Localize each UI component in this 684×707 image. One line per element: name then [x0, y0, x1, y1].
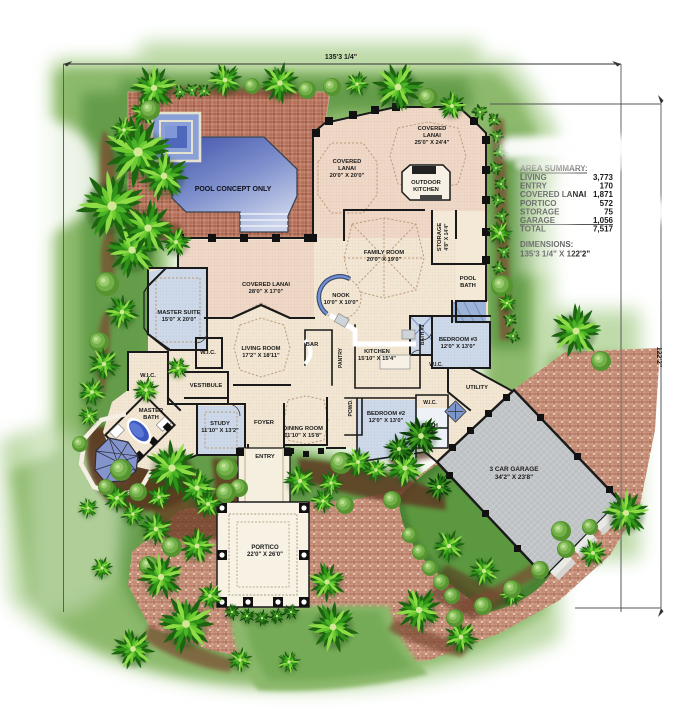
svg-text:BATH: BATH [460, 283, 476, 289]
svg-text:POOL: POOL [460, 276, 477, 282]
svg-text:PORTICO: PORTICO [251, 545, 279, 551]
svg-text:17'2" X 18'11": 17'2" X 18'11" [242, 353, 280, 359]
svg-text:11'10" X 15'8": 11'10" X 15'8" [284, 433, 322, 439]
svg-text:VESTIBULE: VESTIBULE [190, 383, 223, 389]
svg-text:W.I.C.: W.I.C. [423, 400, 437, 406]
svg-text:W.I.C.: W.I.C. [200, 350, 216, 356]
svg-text:LANAI: LANAI [338, 166, 356, 172]
svg-text:W.I.C.: W.I.C. [429, 362, 443, 368]
svg-text:12'0" X 13'0": 12'0" X 13'0" [369, 418, 404, 424]
svg-text:20'0" X 19'0": 20'0" X 19'0" [367, 257, 402, 263]
svg-text:MASTER SUITE: MASTER SUITE [157, 310, 200, 316]
svg-text:BEDROOM #2: BEDROOM #2 [367, 411, 405, 417]
svg-text:COVERED: COVERED [418, 126, 447, 132]
svg-text:10'0" X 10'0": 10'0" X 10'0" [324, 300, 359, 306]
svg-text:COVERED LANAI: COVERED LANAI [242, 282, 290, 288]
svg-text:COVERED: COVERED [333, 159, 362, 165]
svg-text:15'0" X 20'0": 15'0" X 20'0" [162, 317, 197, 323]
svg-text:BATH: BATH [422, 423, 438, 429]
svg-text:KITCHEN: KITCHEN [364, 349, 390, 355]
svg-text:LANAI: LANAI [423, 133, 441, 139]
svg-text:12'0" X 13'0": 12'0" X 13'0" [441, 344, 476, 350]
svg-text:15'10" X 15'4": 15'10" X 15'4" [358, 356, 396, 362]
svg-text:22'0" X 26'0": 22'0" X 26'0" [247, 552, 283, 558]
svg-text:OUTDOOR: OUTDOOR [411, 180, 441, 186]
svg-text:STUDY: STUDY [210, 421, 230, 427]
svg-text:135'3 1/4": 135'3 1/4" [325, 54, 357, 61]
svg-text:ENTRY: ENTRY [255, 454, 275, 460]
svg-text:MASTER: MASTER [139, 408, 164, 414]
svg-text:28'0" X 17'0": 28'0" X 17'0" [249, 289, 284, 295]
svg-text:25'0" X 24'4": 25'0" X 24'4" [415, 140, 450, 146]
svg-text:PANTRY: PANTRY [338, 347, 344, 368]
svg-text:BAR: BAR [306, 342, 319, 348]
svg-text:34'2" X 23'8": 34'2" X 23'8" [495, 474, 533, 481]
svg-text:FOYER: FOYER [254, 420, 275, 426]
svg-text:4'8" X 14'4": 4'8" X 14'4" [444, 223, 450, 251]
svg-text:LIVING ROOM: LIVING ROOM [242, 346, 281, 352]
svg-text:POOL CONCEPT ONLY: POOL CONCEPT ONLY [195, 186, 272, 193]
svg-text:UTILITY: UTILITY [466, 385, 488, 391]
svg-text:NOOK: NOOK [332, 293, 350, 299]
svg-text:3 CAR GARAGE: 3 CAR GARAGE [489, 466, 539, 473]
svg-text:POWD.: POWD. [348, 399, 354, 417]
svg-text:BATH #3: BATH #3 [420, 325, 426, 346]
svg-text:DINING ROOM: DINING ROOM [283, 426, 323, 432]
svg-text:7,517: 7,517 [593, 225, 614, 234]
svg-text:KITCHEN: KITCHEN [413, 187, 439, 193]
svg-text:#2: #2 [427, 430, 433, 436]
svg-text:BATH: BATH [143, 415, 159, 421]
svg-text:W.I.C.: W.I.C. [140, 373, 156, 379]
svg-text:FAMILY ROOM: FAMILY ROOM [364, 250, 404, 256]
svg-text:20'0" X 20'0": 20'0" X 20'0" [330, 173, 365, 179]
svg-text:11'10" X 13'2": 11'10" X 13'2" [201, 428, 239, 434]
svg-text:STORAGE: STORAGE [437, 223, 443, 252]
svg-text:BEDROOM #3: BEDROOM #3 [439, 337, 478, 343]
